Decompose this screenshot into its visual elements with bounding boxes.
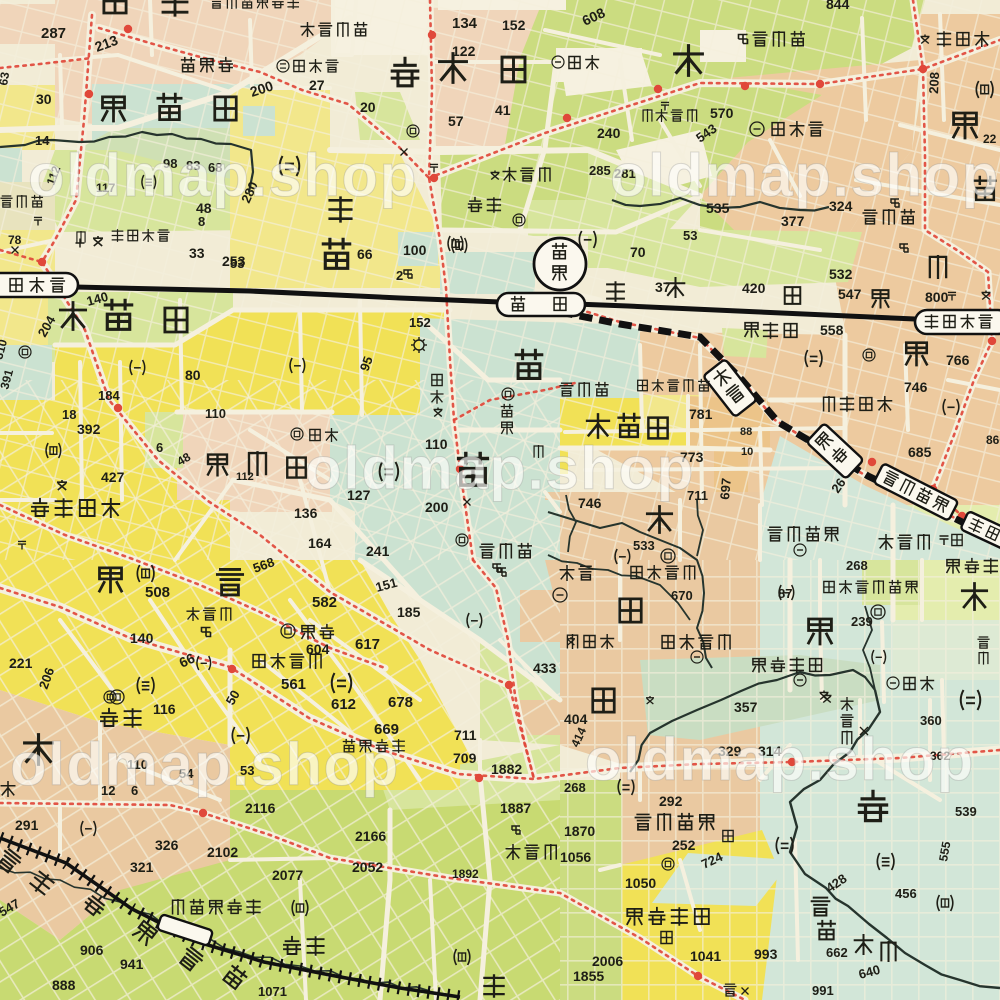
svg-text:570: 570 bbox=[710, 105, 734, 121]
svg-text:oldmap.shop: oldmap.shop bbox=[28, 142, 418, 209]
svg-text:404: 404 bbox=[564, 711, 588, 727]
svg-text:1855: 1855 bbox=[573, 968, 604, 984]
svg-text:539: 539 bbox=[955, 804, 977, 819]
svg-text:2102: 2102 bbox=[207, 844, 238, 860]
svg-text:766: 766 bbox=[946, 352, 970, 368]
svg-text:2166: 2166 bbox=[355, 828, 386, 844]
svg-text:41: 41 bbox=[495, 102, 511, 118]
svg-text:1050: 1050 bbox=[625, 875, 656, 891]
svg-text:1041: 1041 bbox=[690, 948, 721, 964]
svg-text:420: 420 bbox=[742, 280, 766, 296]
svg-text:80: 80 bbox=[185, 367, 201, 383]
svg-text:268: 268 bbox=[564, 780, 586, 795]
svg-text:291: 291 bbox=[15, 817, 39, 833]
svg-text:392: 392 bbox=[77, 421, 101, 437]
svg-text:208: 208 bbox=[926, 72, 942, 94]
svg-text:78: 78 bbox=[8, 233, 22, 247]
svg-text:991: 991 bbox=[812, 983, 834, 998]
svg-text:781: 781 bbox=[689, 406, 713, 422]
svg-text:2052: 2052 bbox=[352, 859, 383, 875]
svg-text:326: 326 bbox=[155, 837, 179, 853]
svg-text:87: 87 bbox=[778, 586, 792, 601]
svg-text:oldmap.shop: oldmap.shop bbox=[585, 726, 975, 793]
svg-text:746: 746 bbox=[904, 379, 928, 395]
svg-text:239: 239 bbox=[851, 614, 873, 629]
svg-text:221: 221 bbox=[9, 655, 33, 671]
svg-text:70: 70 bbox=[630, 244, 646, 260]
svg-text:888: 888 bbox=[52, 977, 76, 993]
svg-text:866: 866 bbox=[986, 433, 1000, 447]
svg-text:oldmap.shop: oldmap.shop bbox=[610, 142, 1000, 209]
svg-text:844: 844 bbox=[826, 0, 850, 12]
svg-text:240: 240 bbox=[597, 125, 621, 141]
svg-text:184: 184 bbox=[98, 388, 120, 403]
svg-text:66: 66 bbox=[357, 246, 373, 262]
svg-text:582: 582 bbox=[312, 594, 337, 611]
svg-text:164: 164 bbox=[308, 535, 332, 551]
svg-text:152: 152 bbox=[409, 315, 431, 330]
svg-text:oldmap.shop: oldmap.shop bbox=[10, 731, 400, 798]
svg-text:321: 321 bbox=[130, 859, 154, 875]
svg-text:241: 241 bbox=[366, 543, 390, 559]
svg-text:37: 37 bbox=[655, 279, 671, 295]
svg-text:140: 140 bbox=[130, 630, 154, 646]
svg-text:678: 678 bbox=[388, 694, 413, 711]
svg-text:800: 800 bbox=[925, 289, 949, 305]
svg-text:1071: 1071 bbox=[258, 984, 287, 999]
svg-text:670: 670 bbox=[671, 588, 693, 603]
svg-text:2006: 2006 bbox=[592, 953, 623, 969]
svg-text:88: 88 bbox=[740, 426, 752, 438]
svg-text:152: 152 bbox=[502, 17, 526, 33]
svg-text:561: 561 bbox=[281, 676, 306, 693]
svg-text:185: 185 bbox=[397, 604, 421, 620]
svg-text:456: 456 bbox=[895, 886, 917, 901]
svg-text:1870: 1870 bbox=[564, 823, 595, 839]
svg-text:433: 433 bbox=[533, 660, 557, 676]
svg-text:508: 508 bbox=[145, 584, 170, 601]
svg-text:941: 941 bbox=[120, 956, 144, 972]
svg-text:252: 252 bbox=[672, 837, 696, 853]
svg-text:612: 612 bbox=[331, 696, 356, 713]
svg-text:2116: 2116 bbox=[245, 800, 276, 816]
svg-text:122: 122 bbox=[452, 43, 476, 59]
svg-text:709: 709 bbox=[453, 750, 477, 766]
svg-text:533: 533 bbox=[633, 538, 655, 553]
svg-text:18: 18 bbox=[62, 407, 76, 422]
svg-text:604: 604 bbox=[306, 641, 330, 657]
svg-text:268: 268 bbox=[846, 558, 868, 573]
svg-text:558: 558 bbox=[820, 322, 844, 338]
svg-text:57: 57 bbox=[448, 113, 464, 129]
svg-text:116: 116 bbox=[153, 701, 176, 717]
svg-text:oldmap.shop: oldmap.shop bbox=[305, 435, 695, 502]
svg-text:377: 377 bbox=[781, 213, 805, 229]
svg-text:993: 993 bbox=[754, 946, 778, 962]
svg-text:697: 697 bbox=[717, 477, 734, 500]
svg-text:2077: 2077 bbox=[272, 867, 303, 883]
svg-text:711: 711 bbox=[454, 727, 477, 743]
svg-text:285: 285 bbox=[589, 163, 611, 178]
svg-text:253: 253 bbox=[222, 253, 246, 269]
svg-text:427: 427 bbox=[101, 469, 125, 485]
svg-text:53: 53 bbox=[683, 228, 697, 243]
svg-text:136: 136 bbox=[294, 505, 318, 521]
svg-text:8: 8 bbox=[198, 214, 205, 229]
svg-text:292: 292 bbox=[659, 793, 683, 809]
svg-text:685: 685 bbox=[908, 444, 932, 460]
svg-text:1056: 1056 bbox=[560, 849, 591, 865]
svg-text:30: 30 bbox=[36, 91, 52, 107]
svg-text:112: 112 bbox=[236, 471, 254, 483]
svg-text:100: 100 bbox=[403, 242, 427, 258]
svg-text:1892: 1892 bbox=[452, 867, 479, 881]
svg-text:662: 662 bbox=[826, 945, 848, 960]
svg-text:287: 287 bbox=[41, 25, 66, 42]
svg-text:532: 532 bbox=[829, 266, 853, 282]
svg-text:357: 357 bbox=[734, 699, 758, 715]
svg-text:33: 33 bbox=[189, 245, 205, 261]
svg-text:10: 10 bbox=[741, 446, 753, 458]
svg-text:2: 2 bbox=[396, 268, 403, 283]
svg-text:110: 110 bbox=[205, 406, 226, 421]
svg-text:134: 134 bbox=[452, 15, 478, 32]
svg-text:906: 906 bbox=[80, 942, 104, 958]
svg-text:20: 20 bbox=[360, 99, 376, 115]
svg-text:1887: 1887 bbox=[500, 800, 531, 816]
svg-text:27: 27 bbox=[309, 77, 325, 93]
svg-text:547: 547 bbox=[838, 286, 862, 302]
svg-text:617: 617 bbox=[355, 636, 380, 653]
svg-text:1882: 1882 bbox=[491, 761, 522, 777]
svg-text:6: 6 bbox=[156, 440, 163, 455]
